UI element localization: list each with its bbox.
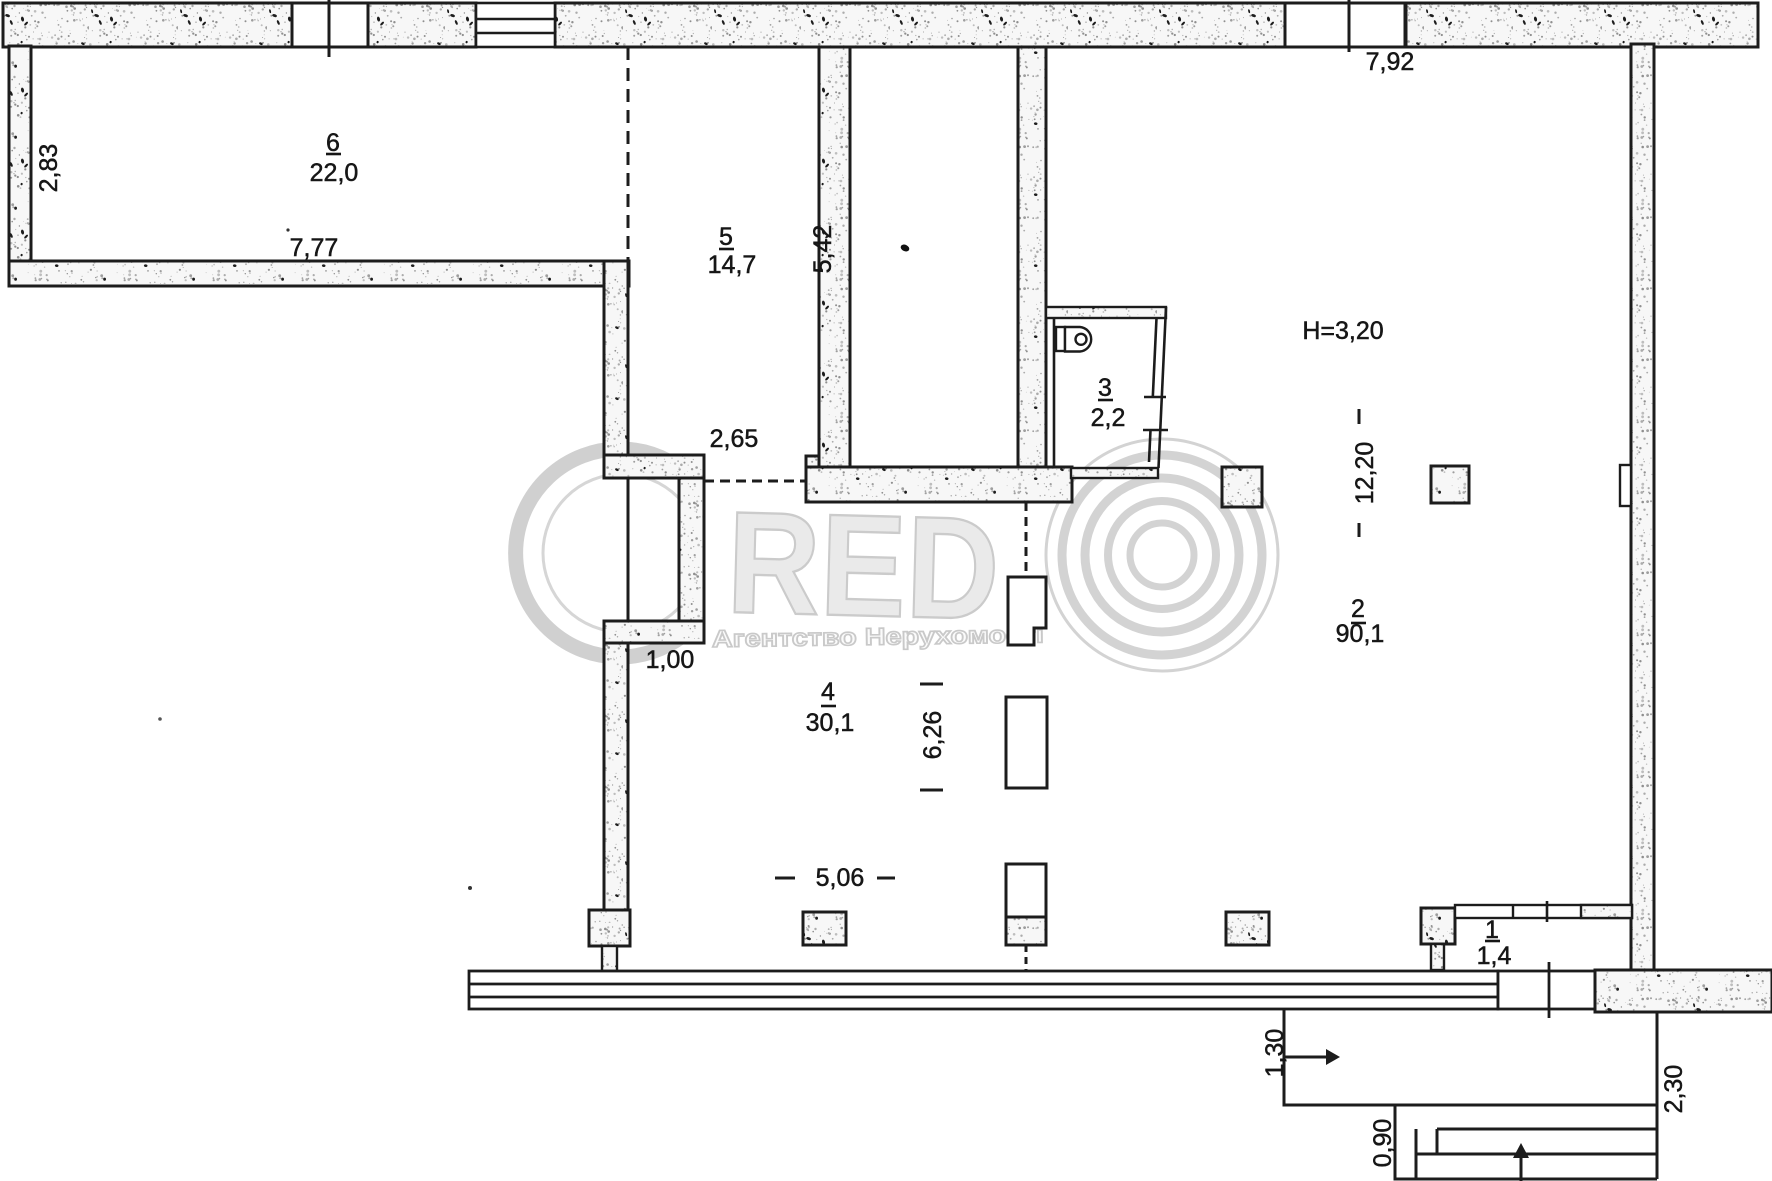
svg-text:1,30: 1,30 bbox=[1261, 1029, 1289, 1078]
svg-text:22,0: 22,0 bbox=[310, 159, 359, 187]
svg-text:H=3,20: H=3,20 bbox=[1302, 317, 1383, 345]
svg-text:6,26: 6,26 bbox=[919, 711, 947, 760]
svg-text:7,92: 7,92 bbox=[1366, 48, 1415, 76]
svg-text:2,65: 2,65 bbox=[710, 425, 759, 453]
svg-text:30,1: 30,1 bbox=[806, 709, 855, 737]
svg-text:2: 2 bbox=[1351, 595, 1365, 623]
svg-text:2,30: 2,30 bbox=[1660, 1065, 1688, 1114]
svg-text:0,90: 0,90 bbox=[1369, 1119, 1397, 1168]
svg-text:5,42: 5,42 bbox=[809, 225, 837, 274]
svg-text:3: 3 bbox=[1098, 374, 1112, 402]
svg-text:1,4: 1,4 bbox=[1477, 942, 1512, 970]
svg-text:4: 4 bbox=[821, 678, 835, 706]
svg-text:7,77: 7,77 bbox=[290, 234, 339, 262]
svg-text:Агентство Нерухомості: Агентство Нерухомості bbox=[712, 621, 1044, 653]
svg-text:5,06: 5,06 bbox=[816, 864, 865, 892]
svg-text:12,20: 12,20 bbox=[1351, 442, 1379, 505]
svg-text:5: 5 bbox=[719, 223, 733, 251]
svg-text:90,1: 90,1 bbox=[1336, 620, 1385, 648]
svg-text:1,00: 1,00 bbox=[646, 646, 695, 674]
svg-text:14,7: 14,7 bbox=[708, 251, 757, 279]
svg-text:2,83: 2,83 bbox=[35, 144, 63, 193]
svg-text:2,2: 2,2 bbox=[1091, 404, 1126, 432]
